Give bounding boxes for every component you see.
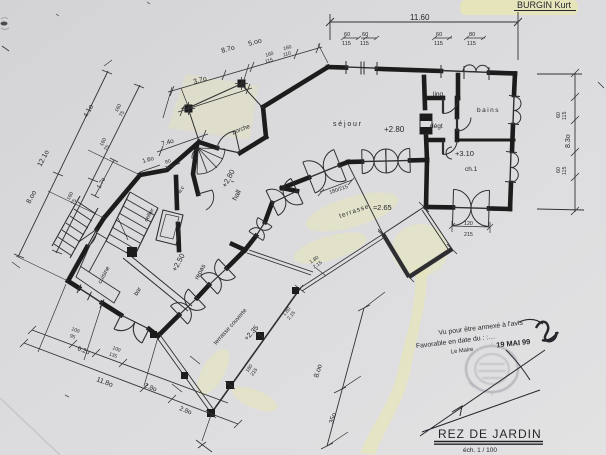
svg-text:BURGIN Kurt: BURGIN Kurt [517,0,572,10]
svg-text:REZ DE JARDIN: REZ DE JARDIN [438,427,542,441]
svg-text:11.60: 11.60 [410,13,430,22]
svg-text:80: 80 [469,32,475,38]
svg-text:115: 115 [467,41,476,47]
svg-text:bains: bains [477,107,500,114]
svg-text:séjour: séjour [333,121,363,128]
svg-text:115: 115 [562,167,568,175]
svg-text:215: 215 [464,232,473,238]
svg-text:dégt: dégt [430,123,443,130]
svg-text:115: 115 [342,41,351,47]
svg-text:60: 60 [362,32,368,38]
svg-text:60: 60 [344,32,350,38]
svg-text:≈2.65: ≈2.65 [373,203,392,212]
svg-text:115: 115 [434,41,443,47]
svg-text:120: 120 [464,221,473,227]
svg-text:8.3o: 8.3o [565,134,572,148]
svg-text:60: 60 [436,32,442,38]
svg-text:éch. 1 / 100: éch. 1 / 100 [463,447,497,454]
svg-text:+2.80: +2.80 [384,125,405,134]
svg-text:+3.10: +3.10 [455,149,474,158]
svg-text:115: 115 [360,41,369,47]
svg-text:ling.: ling. [433,91,445,98]
svg-text:115: 115 [562,112,568,120]
svg-text:ch.1: ch.1 [465,166,478,173]
